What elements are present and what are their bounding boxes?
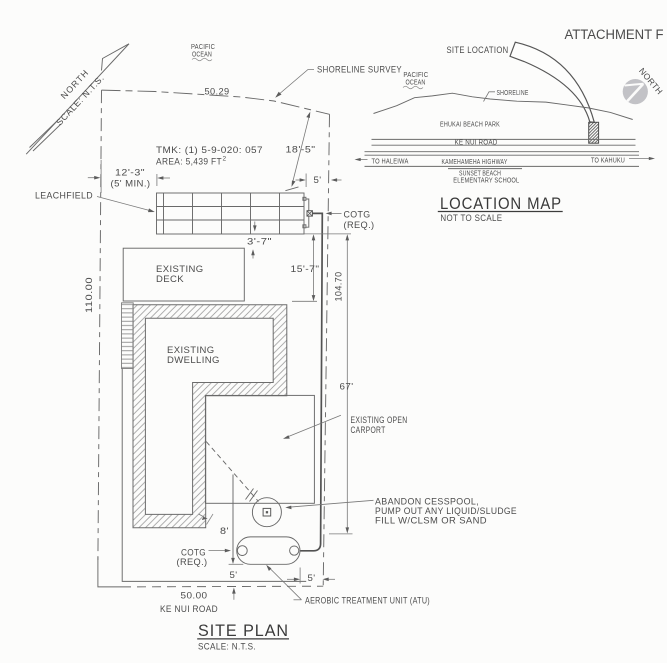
svg-text:110.00: 110.00 bbox=[84, 277, 95, 313]
svg-text:TMK: (1) 5-9-020: 057: TMK: (1) 5-9-020: 057 bbox=[156, 145, 263, 156]
svg-text:CARPORT: CARPORT bbox=[351, 425, 386, 436]
svg-text:DWELLING: DWELLING bbox=[167, 355, 220, 366]
svg-text:LEACHFIELD: LEACHFIELD bbox=[35, 191, 93, 202]
svg-text:(REQ.): (REQ.) bbox=[177, 557, 208, 568]
svg-text:18'-5": 18'-5" bbox=[286, 145, 316, 156]
svg-text:SHORELINE: SHORELINE bbox=[497, 88, 529, 97]
svg-text:FILL W/CLSM OR SAND: FILL W/CLSM OR SAND bbox=[375, 516, 487, 527]
svg-text:NOT TO SCALE: NOT TO SCALE bbox=[440, 213, 502, 224]
svg-text:SHORELINE SURVEY: SHORELINE SURVEY bbox=[317, 65, 402, 76]
svg-text:DECK: DECK bbox=[156, 274, 184, 285]
svg-text:EHUKAI BEACH PARK: EHUKAI BEACH PARK bbox=[440, 120, 500, 129]
svg-text:15'-7": 15'-7" bbox=[291, 264, 320, 275]
svg-text:OCEAN: OCEAN bbox=[406, 79, 426, 86]
svg-text:TO HALEIWA: TO HALEIWA bbox=[372, 159, 409, 166]
svg-text:ELEMENTARY SCHOOL: ELEMENTARY SCHOOL bbox=[453, 178, 519, 185]
svg-text:AREA: 5,439 FT: AREA: 5,439 FT bbox=[156, 157, 222, 168]
svg-text:ATTACHMENT F: ATTACHMENT F bbox=[565, 27, 664, 42]
svg-text:(5' MIN.): (5' MIN.) bbox=[111, 179, 151, 190]
svg-text:3'-7": 3'-7" bbox=[247, 237, 272, 248]
svg-text:KAMEHAMEHA HIGHWAY: KAMEHAMEHA HIGHWAY bbox=[442, 157, 508, 166]
svg-text:KE NUI ROAD: KE NUI ROAD bbox=[455, 140, 498, 147]
svg-text:LOCATION MAP: LOCATION MAP bbox=[440, 194, 562, 213]
svg-text:12'-3": 12'-3" bbox=[115, 168, 145, 179]
svg-text:KE NUI ROAD: KE NUI ROAD bbox=[160, 604, 218, 615]
svg-text:104.70: 104.70 bbox=[334, 272, 345, 302]
svg-text:5': 5' bbox=[314, 175, 322, 186]
svg-text:SCALE: N.T.S.: SCALE: N.T.S. bbox=[198, 642, 256, 653]
svg-text:67': 67' bbox=[340, 382, 354, 393]
svg-text:50.29: 50.29 bbox=[205, 87, 230, 98]
svg-text:PACIFIC: PACIFIC bbox=[403, 72, 428, 79]
svg-text:2: 2 bbox=[223, 156, 227, 163]
svg-text:COTG: COTG bbox=[344, 210, 371, 221]
svg-text:TO KAHUKU: TO KAHUKU bbox=[591, 158, 625, 165]
svg-text:AEROBIC TREATMENT UNIT (ATU): AEROBIC TREATMENT UNIT (ATU) bbox=[305, 596, 430, 607]
svg-text:8': 8' bbox=[220, 526, 229, 537]
svg-text:PACIFIC: PACIFIC bbox=[191, 44, 215, 51]
svg-text:(REQ.): (REQ.) bbox=[344, 220, 375, 231]
svg-text:5': 5' bbox=[308, 573, 316, 584]
svg-text:SITE LOCATION: SITE LOCATION bbox=[447, 45, 509, 56]
svg-text:SUNSET BEACH: SUNSET BEACH bbox=[459, 171, 501, 178]
svg-text:OCEAN: OCEAN bbox=[192, 52, 212, 59]
svg-text:50.00: 50.00 bbox=[181, 591, 208, 602]
svg-text:SITE PLAN: SITE PLAN bbox=[198, 621, 289, 640]
svg-text:5': 5' bbox=[230, 570, 238, 581]
